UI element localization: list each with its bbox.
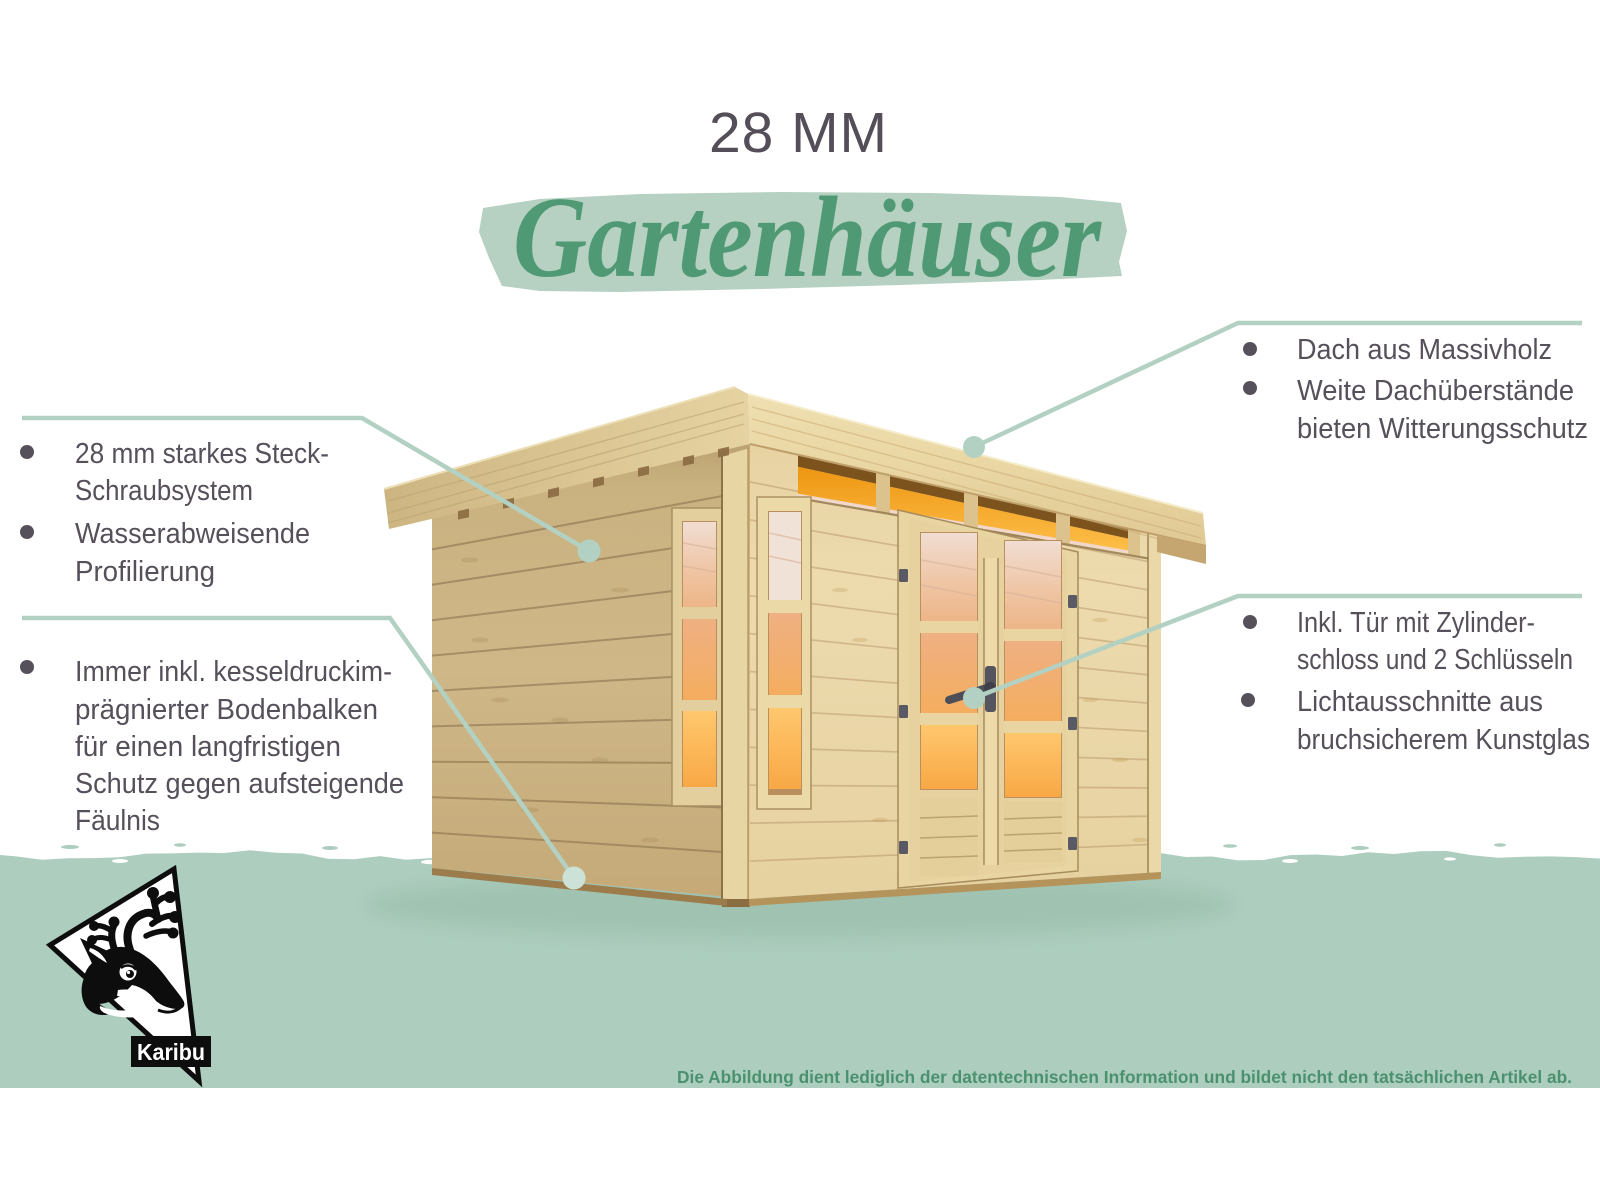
- svg-text:Gartenhäuser: Gartenhäuser: [513, 174, 1102, 302]
- svg-text:Lichtausschnitte aus: Lichtausschnitte aus: [1297, 686, 1543, 718]
- svg-text:28 mm starkes Steck-: 28 mm starkes Steck-: [75, 438, 329, 470]
- svg-text:Dach aus Massivholz: Dach aus Massivholz: [1297, 334, 1552, 366]
- svg-text:schloss und 2 Schlüsseln: schloss und 2 Schlüsseln: [1297, 644, 1573, 676]
- svg-text:Schutz gegen aufsteigende: Schutz gegen aufsteigende: [75, 768, 404, 800]
- svg-text:Schraubsystem: Schraubsystem: [75, 475, 253, 507]
- svg-text:Profilierung: Profilierung: [75, 556, 215, 588]
- svg-text:für einen langfristigen: für einen langfristigen: [75, 731, 341, 763]
- svg-text:Karibu: Karibu: [137, 1039, 205, 1065]
- svg-text:bruchsicherem Kunstglas: bruchsicherem Kunstglas: [1297, 724, 1590, 756]
- svg-text:prägnierter Bodenbalken: prägnierter Bodenbalken: [75, 694, 378, 726]
- svg-text:Die Abbildung dient lediglich: Die Abbildung dient lediglich der datent…: [677, 1067, 1572, 1087]
- svg-text:Fäulnis: Fäulnis: [75, 805, 160, 837]
- svg-text:Inkl. Tür mit Zylinder-: Inkl. Tür mit Zylinder-: [1297, 607, 1535, 639]
- svg-text:28 MM: 28 MM: [709, 101, 889, 165]
- svg-text:Wasserabweisende: Wasserabweisende: [75, 518, 310, 550]
- svg-text:Weite Dachüberstände: Weite Dachüberstände: [1297, 375, 1574, 407]
- svg-text:bieten Witterungsschutz: bieten Witterungsschutz: [1297, 413, 1588, 445]
- svg-text:Immer inkl. kesseldruckim-: Immer inkl. kesseldruckim-: [75, 656, 392, 688]
